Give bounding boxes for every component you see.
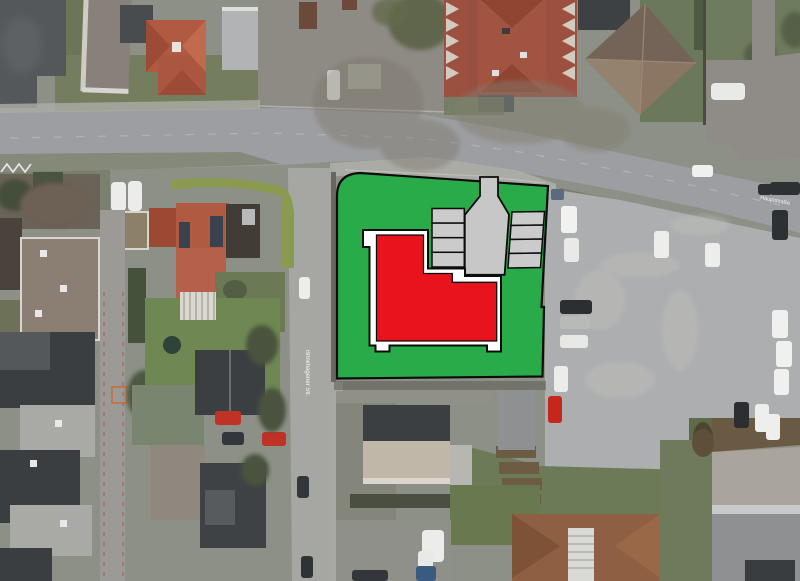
svg-text:Brinkhagener Str.: Brinkhagener Str. <box>304 350 310 397</box>
